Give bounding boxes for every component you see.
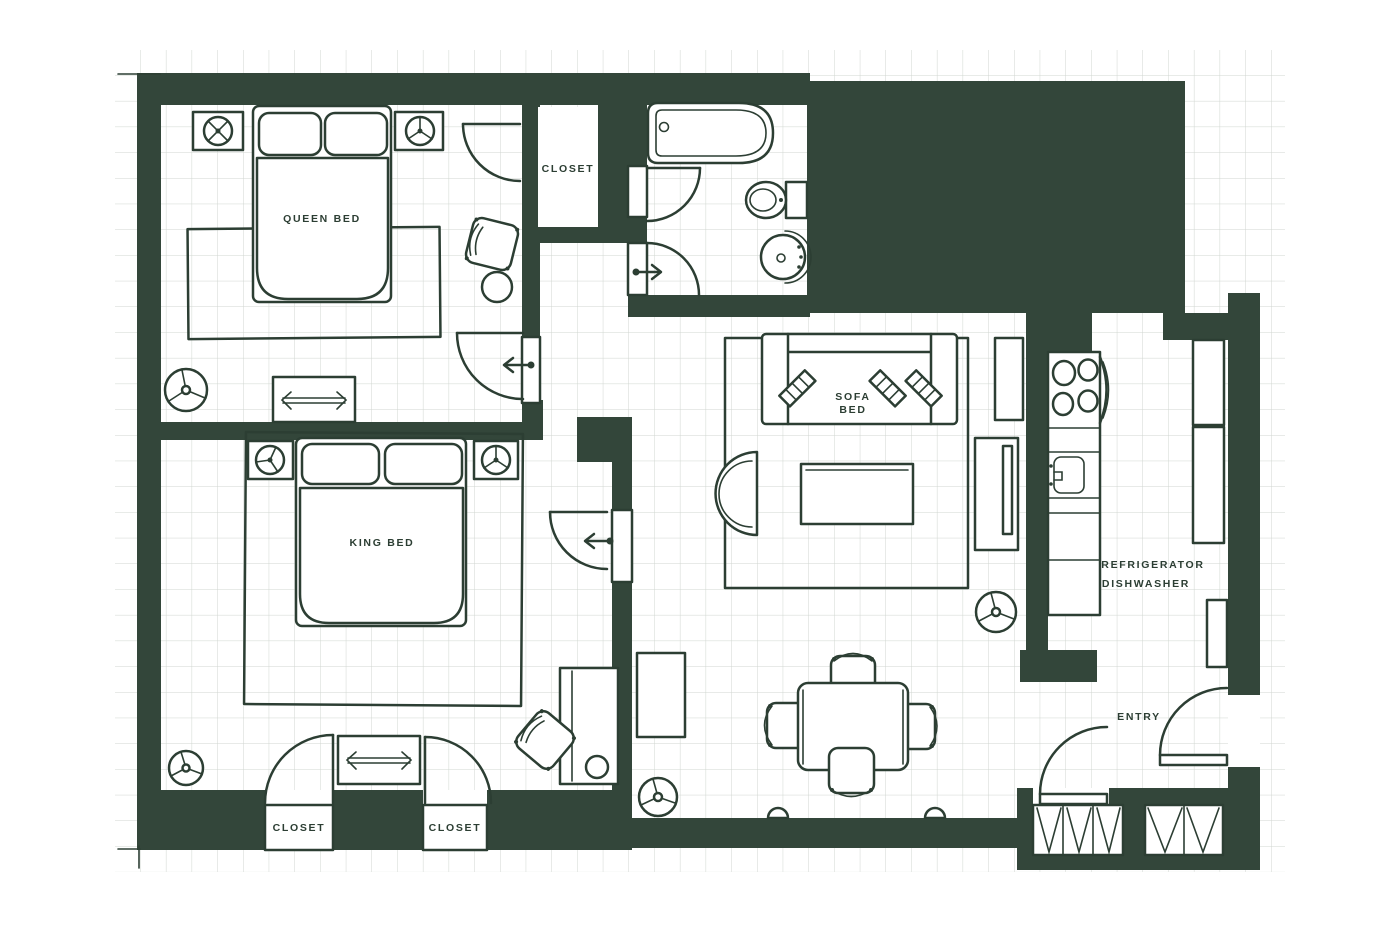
wall-top bbox=[137, 73, 810, 105]
king-bench bbox=[338, 736, 420, 784]
wall-king-living-upper bbox=[612, 462, 632, 512]
wall-right-upper bbox=[1228, 293, 1260, 697]
floor-plan-drawing: QUEEN BED CL bbox=[0, 0, 1400, 933]
king-desk-stool bbox=[586, 756, 608, 778]
king-door-jamb bbox=[612, 510, 632, 582]
wall-queen-east bbox=[522, 103, 540, 337]
king-lamp-left-icon bbox=[256, 446, 284, 474]
wall-living-south bbox=[612, 818, 1040, 848]
bathtub bbox=[648, 103, 773, 163]
queen-pillow-right bbox=[325, 113, 387, 155]
floor-plan-page: QUEEN BED CL bbox=[0, 0, 1400, 933]
wall-bump-left bbox=[768, 808, 788, 818]
wall-kitchen-north-b bbox=[1163, 313, 1228, 340]
king-closet-right-label: CLOSET bbox=[429, 822, 482, 834]
tv-icon bbox=[1003, 446, 1012, 534]
sofa-bed-label-line2: BED bbox=[839, 404, 866, 416]
queen-lamp-right-icon bbox=[406, 117, 434, 145]
bath-door-jamb-upper bbox=[628, 166, 647, 217]
queen-ceiling-fan-icon bbox=[165, 369, 207, 411]
wall-king-south bbox=[137, 790, 632, 850]
queen-pillow-left bbox=[259, 113, 321, 155]
king-pillow-right bbox=[385, 444, 462, 484]
wall-entry-block bbox=[1020, 650, 1097, 682]
wall-bath-south bbox=[628, 295, 810, 317]
dishwasher-label: DISHWASHER bbox=[1102, 578, 1190, 590]
tv-console bbox=[975, 438, 1018, 550]
entry-closet-louver-right bbox=[1145, 805, 1223, 855]
wall-bath-west-upper bbox=[628, 103, 647, 166]
king-lamp-right-icon bbox=[482, 446, 510, 474]
wall-left bbox=[137, 73, 161, 850]
king-bed: KING BED bbox=[296, 438, 466, 626]
queen-bed-label: QUEEN BED bbox=[283, 213, 361, 225]
dining-console bbox=[637, 653, 685, 737]
dining-ceiling-fan-icon bbox=[639, 778, 677, 816]
entry-door-leaf-open bbox=[1207, 600, 1227, 667]
entry-label: ENTRY bbox=[1117, 711, 1161, 723]
dining-chair-bottom bbox=[829, 748, 874, 797]
refrigerator-label: REFRIGERATOR bbox=[1101, 559, 1204, 571]
wall-kitchen-west bbox=[1026, 313, 1048, 650]
coffee-table bbox=[801, 464, 913, 524]
queen-lamp-left-icon bbox=[204, 117, 232, 145]
queen-armchair bbox=[464, 216, 520, 272]
entry-closet-louver-left bbox=[1033, 805, 1123, 855]
wall-hall-closet-east bbox=[598, 103, 630, 243]
toilet bbox=[746, 182, 807, 218]
king-closet-left-label: CLOSET bbox=[273, 822, 326, 834]
queen-door-jamb bbox=[522, 337, 540, 403]
wall-bath-west-mid bbox=[628, 217, 647, 243]
side-table bbox=[995, 338, 1023, 420]
wall-bump-right bbox=[925, 808, 945, 818]
queen-side-table bbox=[482, 272, 512, 302]
hall-closet-label: CLOSET bbox=[542, 163, 595, 175]
king-pillow-left bbox=[302, 444, 379, 484]
wall-hall-closet-south bbox=[538, 227, 598, 243]
king-bed-label: KING BED bbox=[350, 537, 415, 549]
refrigerator-unit bbox=[1193, 340, 1224, 543]
sofa-bed: SOFA BED bbox=[762, 334, 957, 424]
wall-block-top-right bbox=[807, 81, 1185, 313]
living-ceiling-fan-icon bbox=[976, 592, 1016, 632]
queen-bench bbox=[273, 377, 355, 422]
sofa-bed-label-line1: SOFA bbox=[835, 391, 870, 403]
wall-kitchen-north-a bbox=[1048, 313, 1092, 352]
queen-bed: QUEEN BED bbox=[253, 106, 391, 302]
entry-door-gap bbox=[1228, 695, 1260, 767]
king-ceiling-fan-icon bbox=[169, 751, 203, 785]
wall-step-king bbox=[577, 417, 632, 462]
